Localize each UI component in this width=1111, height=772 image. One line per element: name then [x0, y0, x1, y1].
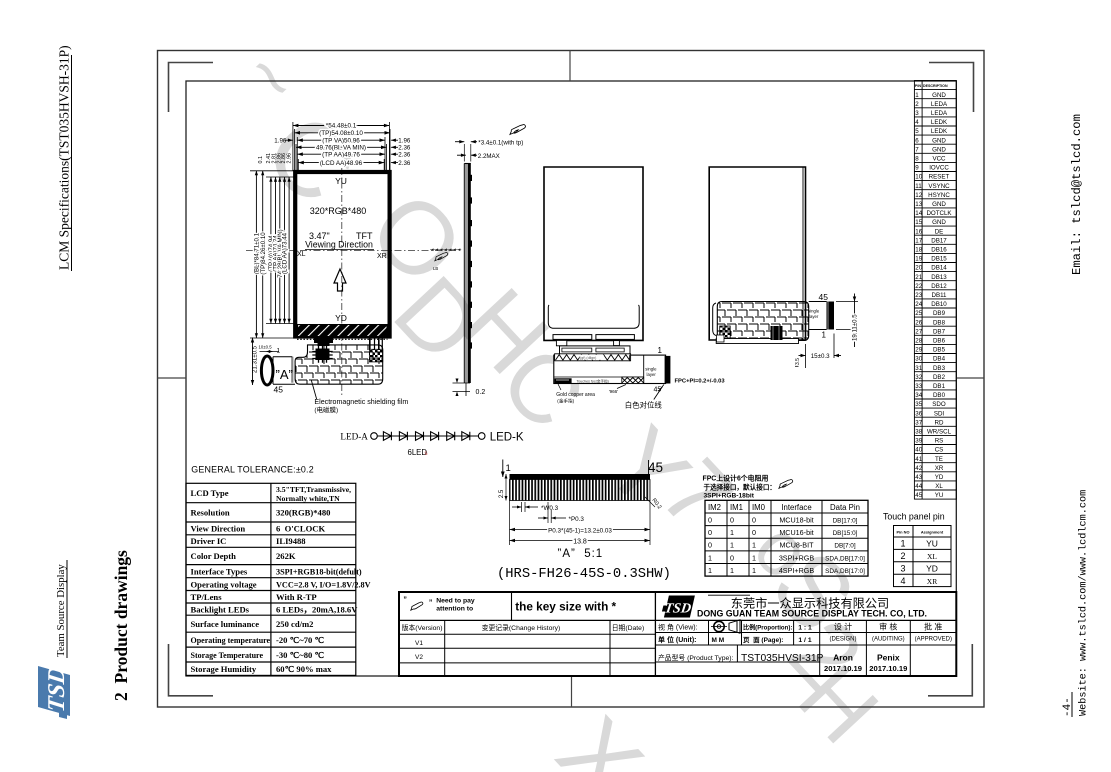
- svg-text:XL: XL: [935, 483, 943, 490]
- svg-text:DB13: DB13: [931, 274, 947, 281]
- svg-text:6 O'CLOCK: 6 O'CLOCK: [276, 524, 325, 534]
- svg-text:3: 3: [900, 563, 905, 573]
- svg-text:3SPI+RGB-18bit: 3SPI+RGB-18bit: [704, 493, 755, 500]
- svg-text:批 准: 批 准: [924, 622, 942, 632]
- svg-text:45: 45: [915, 492, 922, 499]
- svg-text:(HRS-FH26-45S-0.3SHW): (HRS-FH26-45S-0.3SHW): [497, 566, 671, 582]
- svg-text:15±0.3: 15±0.3: [811, 353, 830, 360]
- svg-text:MCU8-BIT: MCU8-BIT: [780, 541, 815, 550]
- svg-text:Penix: Penix: [877, 653, 900, 663]
- svg-text:1: 1: [658, 346, 663, 355]
- svg-text:审 核: 审 核: [879, 622, 897, 632]
- svg-text:RS: RS: [935, 438, 944, 445]
- svg-text:(TP AA)49.76: (TP AA)49.76: [322, 151, 360, 158]
- svg-text:YD: YD: [926, 563, 938, 573]
- svg-text:Operating temperature: Operating temperature: [191, 636, 271, 645]
- svg-text:DB7: DB7: [933, 328, 946, 335]
- svg-text:1: 1: [730, 528, 734, 537]
- svg-text:LEDK: LEDK: [931, 128, 948, 135]
- svg-text:39: 39: [915, 438, 922, 445]
- svg-text:(TP)84.26±0.10: (TP)84.26±0.10: [260, 232, 267, 275]
- svg-text:1: 1: [900, 539, 905, 549]
- svg-text:41: 41: [915, 456, 922, 463]
- svg-text:25: 25: [915, 310, 922, 317]
- svg-text:(LCD AA)73.44: (LCD AA)73.44: [282, 232, 289, 274]
- svg-text:ILI9488: ILI9488: [276, 536, 306, 546]
- svg-text:layer: layer: [809, 314, 819, 319]
- svg-text:-30 ℃~80 ℃: -30 ℃~80 ℃: [276, 650, 324, 660]
- svg-text:26: 26: [915, 319, 922, 326]
- svg-text:YD: YD: [335, 313, 347, 323]
- svg-text:DB12: DB12: [931, 283, 947, 290]
- svg-text:DB[15:0]: DB[15:0]: [833, 530, 858, 537]
- svg-text:RESET: RESET: [929, 174, 950, 181]
- svg-text:7: 7: [915, 146, 919, 153]
- svg-text:2.36: 2.36: [398, 152, 411, 159]
- svg-text:34: 34: [915, 392, 922, 399]
- svg-text:0: 0: [752, 528, 756, 537]
- svg-text:TST035HVSI-31P: TST035HVSI-31P: [741, 653, 824, 664]
- svg-text:1: 1: [752, 541, 756, 550]
- svg-text:SDA,DB[17:0]: SDA,DB[17:0]: [825, 568, 865, 575]
- svg-text:3SPI+RGB: 3SPI+RGB: [779, 553, 815, 562]
- svg-text:0: 0: [708, 516, 712, 525]
- svg-text:3: 3: [915, 110, 919, 117]
- svg-text:DB[17:0]: DB[17:0]: [833, 518, 858, 525]
- svg-text:Touches fpc(金手指): Touches fpc(金手指): [577, 379, 609, 384]
- svg-text:0: 0: [708, 541, 712, 550]
- svg-text:Email: tslcd@tslcd.com: Email: tslcd@tslcd.com: [1070, 114, 1084, 275]
- svg-text:10±0.5: 10±0.5: [259, 345, 273, 350]
- svg-text:视 角 (View):: 视 角 (View):: [658, 622, 698, 631]
- svg-text:FPC上设计6个电阻用: FPC上设计6个电阻用: [703, 474, 769, 483]
- svg-text:于选择接口，默认接口：: 于选择接口，默认接口：: [704, 482, 777, 491]
- svg-text:RD: RD: [935, 419, 944, 426]
- svg-text:(电磁膜): (电磁膜): [314, 405, 338, 414]
- svg-text:4: 4: [900, 576, 905, 586]
- svg-text:DB10: DB10: [931, 301, 947, 308]
- svg-text:4: 4: [915, 119, 919, 126]
- svg-text:15: 15: [915, 219, 922, 226]
- svg-text:IM2: IM2: [708, 503, 721, 512]
- svg-text:V1: V1: [415, 640, 423, 647]
- svg-text:28: 28: [915, 338, 922, 345]
- svg-text:45: 45: [819, 292, 829, 302]
- svg-text:TSD: TSD: [44, 665, 70, 714]
- svg-text:GND: GND: [932, 146, 946, 153]
- svg-text:Interface Types: Interface Types: [191, 566, 248, 576]
- svg-text:11: 11: [915, 183, 922, 190]
- svg-text:日期(Date): 日期(Date): [612, 624, 644, 632]
- svg-text:(AUDITING): (AUDITING): [872, 636, 905, 642]
- svg-text:MCU16-bit: MCU16-bit: [779, 528, 813, 537]
- svg-text:1 : 1: 1 : 1: [798, 624, 812, 631]
- svg-text:attention to: attention to: [436, 606, 473, 613]
- svg-text:PIN: PIN: [915, 84, 921, 88]
- svg-text:变更记录(Change History): 变更记录(Change History): [482, 623, 561, 632]
- svg-text:*3.4±0.1(with tp): *3.4±0.1(with tp): [478, 139, 523, 146]
- svg-text:-20 ℃~70 ℃: -20 ℃~70 ℃: [276, 635, 324, 645]
- svg-text:3.5: 3.5: [795, 358, 801, 365]
- svg-text:(DESIGN): (DESIGN): [830, 636, 857, 642]
- svg-text:Need to pay: Need to pay: [436, 597, 475, 604]
- svg-text:IOVCC: IOVCC: [929, 165, 949, 172]
- svg-text:XR: XR: [377, 253, 387, 260]
- svg-text:40: 40: [915, 447, 922, 454]
- svg-text:SDA,DB[17:0]: SDA,DB[17:0]: [825, 555, 865, 562]
- svg-text:DESCRIPTION: DESCRIPTION: [923, 84, 948, 88]
- svg-text:DB[7:0]: DB[7:0]: [834, 543, 856, 550]
- svg-text:VCC=2.8 V, I/O=1.8V/2.8V: VCC=2.8 V, I/O=1.8V/2.8V: [276, 580, 371, 589]
- svg-text:0: 0: [708, 528, 712, 537]
- svg-text:1: 1: [730, 541, 734, 550]
- svg-text:2.96: 2.96: [286, 153, 292, 164]
- svg-text:12: 12: [915, 192, 922, 199]
- svg-text:产品型号 (Product Type):: 产品型号 (Product Type):: [658, 653, 734, 662]
- svg-text:3.5"TFT,Transmissive,: 3.5"TFT,Transmissive,: [276, 485, 351, 494]
- svg-text:1 / 1: 1 / 1: [798, 637, 811, 644]
- svg-text:Driver IC: Driver IC: [191, 536, 227, 546]
- svg-text:XL: XL: [297, 251, 306, 258]
- svg-text:~: ~: [226, 33, 317, 122]
- svg-text:(APPROVED): (APPROVED): [915, 636, 952, 642]
- svg-text:GENERAL TOLERANCE:±0.2: GENERAL TOLERANCE:±0.2: [191, 465, 314, 475]
- svg-text:2.5: 2.5: [499, 489, 505, 498]
- svg-text:0: 0: [752, 516, 756, 525]
- svg-text:GND: GND: [932, 137, 946, 144]
- svg-text:DB6: DB6: [933, 338, 946, 345]
- svg-text:DOTCLK: DOTCLK: [926, 210, 952, 217]
- svg-text:1.96: 1.96: [274, 137, 287, 144]
- svg-text:22: 22: [915, 283, 922, 290]
- svg-text:2.36: 2.36: [398, 160, 411, 167]
- svg-text:Gold copper area: Gold copper area: [556, 392, 595, 398]
- svg-text:V2: V2: [415, 654, 423, 661]
- svg-text:20: 20: [915, 265, 922, 272]
- svg-text:IM1: IM1: [730, 503, 743, 512]
- svg-text:”: ”: [429, 600, 433, 607]
- svg-text:2.2MAX: 2.2MAX: [478, 153, 500, 160]
- svg-text:DB0: DB0: [933, 392, 946, 399]
- svg-text:19: 19: [915, 256, 922, 263]
- svg-text:262K: 262K: [276, 551, 296, 561]
- svg-text:37: 37: [915, 419, 922, 426]
- svg-text:HSYNC: HSYNC: [928, 192, 950, 199]
- svg-text:P0.3*(45-1)=13.2±0.03: P0.3*(45-1)=13.2±0.03: [548, 527, 612, 534]
- svg-text:*54.48±0.1: *54.48±0.1: [326, 123, 357, 130]
- svg-text:(金手指): (金手指): [557, 397, 574, 404]
- svg-text:23: 23: [915, 292, 922, 299]
- svg-text:Interface: Interface: [781, 503, 811, 512]
- svg-text:DB16: DB16: [931, 247, 947, 254]
- svg-text:SDO: SDO: [932, 401, 946, 408]
- svg-text:白色对位线: 白色对位线: [625, 401, 663, 410]
- svg-text:XR: XR: [935, 465, 944, 472]
- svg-text:60℃ 90% max: 60℃ 90% max: [276, 664, 332, 674]
- svg-text:DONG GUAN TEAM SOURCE DISPLAY: DONG GUAN TEAM SOURCE DISPLAY TECH. CO, …: [697, 609, 927, 619]
- svg-text:TE: TE: [935, 456, 943, 463]
- svg-text:Operating voltage: Operating voltage: [191, 579, 257, 589]
- svg-text:DB9: DB9: [933, 310, 946, 317]
- svg-text:13.8: 13.8: [573, 538, 587, 545]
- svg-text:SDI: SDI: [934, 410, 945, 417]
- svg-text:Storage Humidity: Storage Humidity: [191, 664, 257, 674]
- svg-text:3SPI+RGB18-bit(defult): 3SPI+RGB18-bit(defult): [276, 567, 362, 576]
- svg-text:42: 42: [915, 465, 922, 472]
- svg-text:5: 5: [915, 128, 919, 135]
- svg-text:View Direction: View Direction: [191, 524, 246, 534]
- svg-text:1: 1: [915, 92, 919, 99]
- svg-text:single: single: [645, 367, 657, 372]
- svg-text:17: 17: [915, 237, 922, 244]
- svg-text:2 Product drawings: 2 Product drawings: [111, 550, 131, 701]
- svg-text:(LCD AA)48.96: (LCD AA)48.96: [320, 160, 363, 167]
- svg-text:2017.10.19: 2017.10.19: [824, 664, 862, 673]
- svg-text:1: 1: [708, 553, 712, 562]
- svg-text:CS: CS: [935, 447, 944, 454]
- svg-text:DB15: DB15: [931, 256, 947, 263]
- svg-text:LB: LB: [433, 266, 438, 271]
- svg-text:DB1: DB1: [933, 383, 946, 390]
- svg-text:6 LEDs，20mA,18.6V: 6 LEDs，20mA,18.6V: [276, 604, 358, 614]
- svg-text:320*RGB*480: 320*RGB*480: [310, 206, 367, 216]
- svg-text:19.11±0.5: 19.11±0.5: [852, 314, 859, 341]
- svg-text:DB4: DB4: [933, 356, 946, 363]
- svg-text:FPC+PI=0.2+/-0.03: FPC+PI=0.2+/-0.03: [675, 379, 726, 385]
- svg-text:LCD Type: LCD Type: [191, 488, 229, 498]
- svg-text:MCU18-bit: MCU18-bit: [779, 516, 813, 525]
- svg-text:DB8: DB8: [933, 319, 946, 326]
- svg-text:21: 21: [915, 274, 922, 281]
- svg-text:43: 43: [915, 474, 922, 481]
- svg-text:1: 1: [277, 348, 281, 355]
- svg-text:Viewing Direction: Viewing Direction: [305, 240, 373, 250]
- svg-text:DB2: DB2: [933, 374, 946, 381]
- svg-text:XL: XL: [927, 552, 937, 561]
- svg-text:DB11: DB11: [931, 292, 947, 299]
- svg-text:33: 33: [915, 383, 922, 390]
- svg-text:1: 1: [752, 553, 756, 562]
- svg-text:(TP VA)50.96: (TP VA)50.96: [322, 137, 360, 144]
- svg-text:1.96: 1.96: [398, 138, 411, 145]
- svg-text:Surface luminance: Surface luminance: [191, 619, 260, 629]
- svg-text:YD: YD: [935, 474, 944, 481]
- svg-text:Storage Temperature: Storage Temperature: [191, 651, 264, 660]
- svg-text:14: 14: [915, 210, 922, 217]
- svg-text:1: 1: [822, 331, 827, 340]
- svg-text:Resolution: Resolution: [191, 508, 230, 518]
- svg-text:30: 30: [915, 356, 922, 363]
- svg-text:M M: M M: [712, 637, 725, 644]
- svg-text:13: 13: [915, 201, 922, 208]
- svg-text:1: 1: [752, 566, 756, 575]
- svg-text:设 计: 设 计: [834, 622, 852, 632]
- svg-text:TSD: TSD: [663, 601, 692, 617]
- svg-text:45: 45: [648, 460, 663, 475]
- svg-text:24: 24: [915, 301, 922, 308]
- svg-text:XR: XR: [927, 577, 937, 586]
- svg-text:DE: DE: [935, 228, 944, 235]
- svg-text:32: 32: [915, 374, 922, 381]
- svg-text:the key size with *: the key size with *: [515, 600, 616, 614]
- svg-text:6: 6: [915, 137, 919, 144]
- svg-text:Electromagnetic shielding film: Electromagnetic shielding film: [314, 398, 408, 406]
- svg-text:版本(Version): 版本(Version): [402, 623, 443, 632]
- svg-text:DB5: DB5: [933, 347, 946, 354]
- svg-text:Backlight LEDs: Backlight LEDs: [191, 604, 250, 614]
- svg-text:LED-A: LED-A: [340, 432, 368, 442]
- svg-text:YU: YU: [935, 492, 944, 499]
- svg-text:(gf) (dllgn): (gf) (dllgn): [580, 356, 596, 360]
- svg-text:LEDK: LEDK: [931, 119, 948, 126]
- svg-text:”: ”: [403, 597, 407, 604]
- svg-text:4SPI+RGB: 4SPI+RGB: [779, 566, 815, 575]
- svg-text:YU: YU: [335, 176, 347, 186]
- svg-text:DB17: DB17: [931, 237, 947, 244]
- svg-text:38: 38: [915, 429, 922, 436]
- svg-text:Pin NO: Pin NO: [897, 530, 910, 535]
- svg-text:1: 1: [506, 463, 511, 474]
- svg-text:DB3: DB3: [933, 365, 946, 372]
- svg-text:TP/Lens: TP/Lens: [191, 592, 223, 602]
- svg-text:Team Source Display: Team Source Display: [55, 564, 67, 657]
- svg-text:2: 2: [915, 101, 919, 108]
- svg-text:LEDA: LEDA: [931, 101, 948, 108]
- svg-text:”A” 5:1: ”A” 5:1: [558, 548, 604, 560]
- svg-text:Aron: Aron: [833, 653, 853, 663]
- svg-text:16: 16: [915, 228, 922, 235]
- svg-text:250 cd/m2: 250 cd/m2: [276, 619, 313, 629]
- svg-text:(TP)54.08±0.10: (TP)54.08±0.10: [319, 130, 363, 137]
- svg-text:GND: GND: [932, 201, 946, 208]
- svg-text:'966': '966': [609, 389, 619, 394]
- svg-text:VSYNC: VSYNC: [928, 183, 950, 190]
- svg-text:页 面 (Page):: 页 面 (Page):: [743, 636, 783, 644]
- svg-text:VCC: VCC: [932, 156, 946, 163]
- svg-text:31: 31: [915, 365, 922, 372]
- svg-text:比例(Proportion):: 比例(Proportion):: [743, 623, 792, 631]
- svg-text:8: 8: [915, 156, 919, 163]
- svg-text:36: 36: [915, 410, 922, 417]
- svg-text:LEDA: LEDA: [931, 110, 948, 117]
- svg-text:GND: GND: [932, 92, 946, 99]
- svg-text:Touch panel pin: Touch panel pin: [883, 512, 945, 522]
- svg-text:0.1: 0.1: [258, 156, 264, 164]
- svg-text:*W0.3: *W0.3: [541, 505, 559, 512]
- svg-text:Data Pin: Data Pin: [830, 503, 860, 512]
- svg-text:Color Depth: Color Depth: [191, 551, 237, 561]
- svg-text:LED-K: LED-K: [490, 431, 524, 443]
- svg-text:29: 29: [915, 347, 922, 354]
- svg-text:1: 1: [730, 566, 734, 575]
- svg-text:9: 9: [915, 165, 919, 172]
- svg-text:”A”: ”A”: [276, 367, 293, 382]
- svg-text:Assignment: Assignment: [921, 530, 944, 535]
- svg-text:27: 27: [915, 328, 922, 335]
- svg-text:10: 10: [915, 174, 922, 181]
- svg-text:0: 0: [730, 553, 734, 562]
- svg-text:IM0: IM0: [752, 503, 766, 512]
- svg-text:Normally white,TN: Normally white,TN: [276, 494, 340, 503]
- svg-text:2: 2: [900, 551, 905, 561]
- svg-text:With R-TP: With R-TP: [276, 592, 317, 602]
- svg-text:WR/SCL: WR/SCL: [927, 429, 952, 436]
- svg-text:single: single: [808, 309, 820, 314]
- svg-text:◄◄◄◄◄◄◄: ◄◄◄◄◄◄◄: [430, 247, 461, 252]
- svg-text:layer: layer: [647, 372, 657, 377]
- svg-text:YU: YU: [926, 539, 938, 549]
- svg-text:2017.10.19: 2017.10.19: [869, 664, 907, 673]
- svg-text:0: 0: [730, 516, 734, 525]
- svg-text:LCM Specifications(TST035HVSH-: LCM Specifications(TST035HVSH-31P): [57, 45, 72, 270]
- svg-text:DB14: DB14: [931, 265, 947, 272]
- svg-text:44: 44: [915, 483, 922, 490]
- svg-text:45: 45: [274, 385, 284, 395]
- svg-text:单 位 (Unit):: 单 位 (Unit):: [658, 635, 697, 644]
- svg-text:18: 18: [915, 247, 922, 254]
- svg-text:1: 1: [708, 566, 712, 575]
- svg-text:320(RGB)*480: 320(RGB)*480: [276, 508, 330, 518]
- svg-text:*P0.3: *P0.3: [569, 516, 585, 523]
- svg-text:GND: GND: [932, 219, 946, 226]
- svg-text:35: 35: [915, 401, 922, 408]
- svg-text:s: s: [425, 451, 428, 457]
- svg-text:Website: www.tslcd.com/www.lcd: Website: www.tslcd.com/www.lcdlcm.com: [1078, 490, 1090, 716]
- svg-text:0.2: 0.2: [476, 389, 486, 396]
